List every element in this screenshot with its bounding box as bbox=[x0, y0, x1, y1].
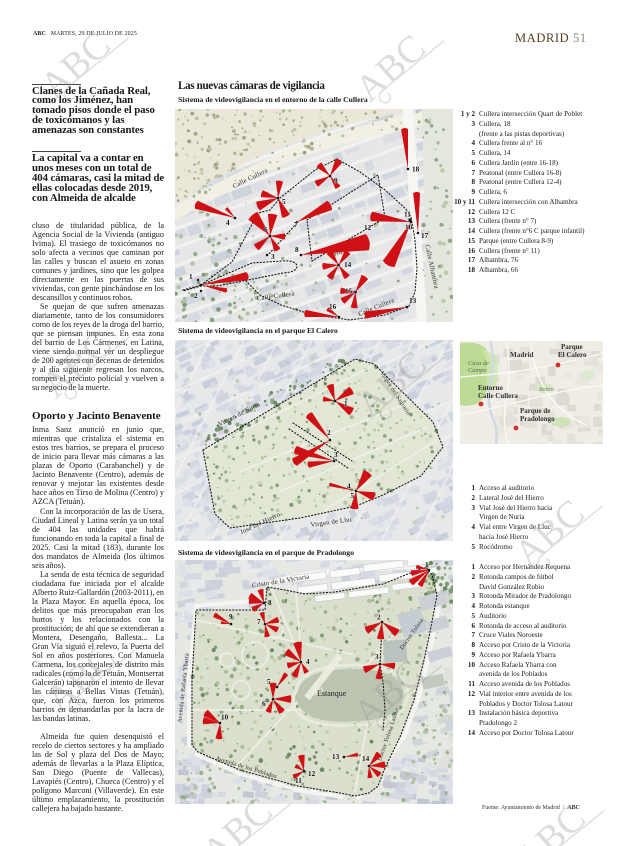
svg-text:7: 7 bbox=[294, 221, 298, 229]
svg-text:4: 4 bbox=[306, 658, 310, 666]
svg-text:1: 1 bbox=[344, 400, 348, 408]
svg-text:3: 3 bbox=[334, 451, 338, 459]
svg-text:Madrid: Madrid bbox=[510, 351, 534, 359]
svg-text:2: 2 bbox=[327, 429, 331, 437]
svg-text:El Calero: El Calero bbox=[558, 351, 587, 359]
svg-text:17: 17 bbox=[421, 232, 429, 240]
svg-text:13: 13 bbox=[332, 753, 340, 761]
svg-text:15: 15 bbox=[345, 288, 353, 296]
svg-text:2: 2 bbox=[377, 614, 381, 622]
svg-text:3: 3 bbox=[271, 253, 275, 261]
svg-text:Calle Cullera: Calle Cullera bbox=[478, 392, 518, 400]
svg-text:18: 18 bbox=[412, 166, 420, 174]
svg-text:10: 10 bbox=[405, 224, 413, 232]
svg-text:Parque: Parque bbox=[561, 343, 583, 351]
svg-text:12: 12 bbox=[308, 770, 316, 778]
svg-text:14: 14 bbox=[344, 261, 352, 269]
svg-text:Estanque: Estanque bbox=[317, 689, 347, 698]
svg-text:Retiro: Retiro bbox=[538, 387, 554, 393]
svg-text:9: 9 bbox=[334, 177, 338, 185]
svg-text:16: 16 bbox=[329, 303, 337, 311]
svg-text:5: 5 bbox=[351, 492, 355, 500]
svg-text:8: 8 bbox=[268, 599, 272, 607]
svg-text:Pradolongo: Pradolongo bbox=[520, 415, 555, 423]
svg-text:5: 5 bbox=[267, 678, 271, 686]
svg-text:4: 4 bbox=[226, 219, 230, 227]
svg-text:6: 6 bbox=[262, 700, 266, 708]
svg-text:11: 11 bbox=[404, 211, 411, 219]
svg-text:6: 6 bbox=[264, 226, 268, 234]
svg-text:4: 4 bbox=[347, 483, 351, 491]
svg-text:Casa de: Casa de bbox=[468, 360, 489, 367]
svg-text:9: 9 bbox=[229, 613, 233, 621]
svg-text:1: 1 bbox=[425, 561, 429, 569]
svg-text:Parque de: Parque de bbox=[520, 407, 550, 415]
svg-text:Campo: Campo bbox=[468, 367, 486, 374]
svg-text:12: 12 bbox=[364, 224, 372, 232]
svg-text:7: 7 bbox=[257, 618, 261, 626]
svg-text:2: 2 bbox=[194, 292, 198, 300]
svg-text:14: 14 bbox=[362, 755, 370, 763]
svg-text:Entorno: Entorno bbox=[478, 384, 503, 392]
svg-text:10: 10 bbox=[221, 714, 229, 722]
svg-text:5: 5 bbox=[282, 198, 286, 206]
svg-text:8: 8 bbox=[295, 246, 299, 254]
svg-text:3: 3 bbox=[375, 653, 379, 661]
svg-text:11: 11 bbox=[295, 777, 302, 785]
svg-text:1: 1 bbox=[189, 273, 193, 281]
svg-text:13: 13 bbox=[409, 297, 417, 305]
